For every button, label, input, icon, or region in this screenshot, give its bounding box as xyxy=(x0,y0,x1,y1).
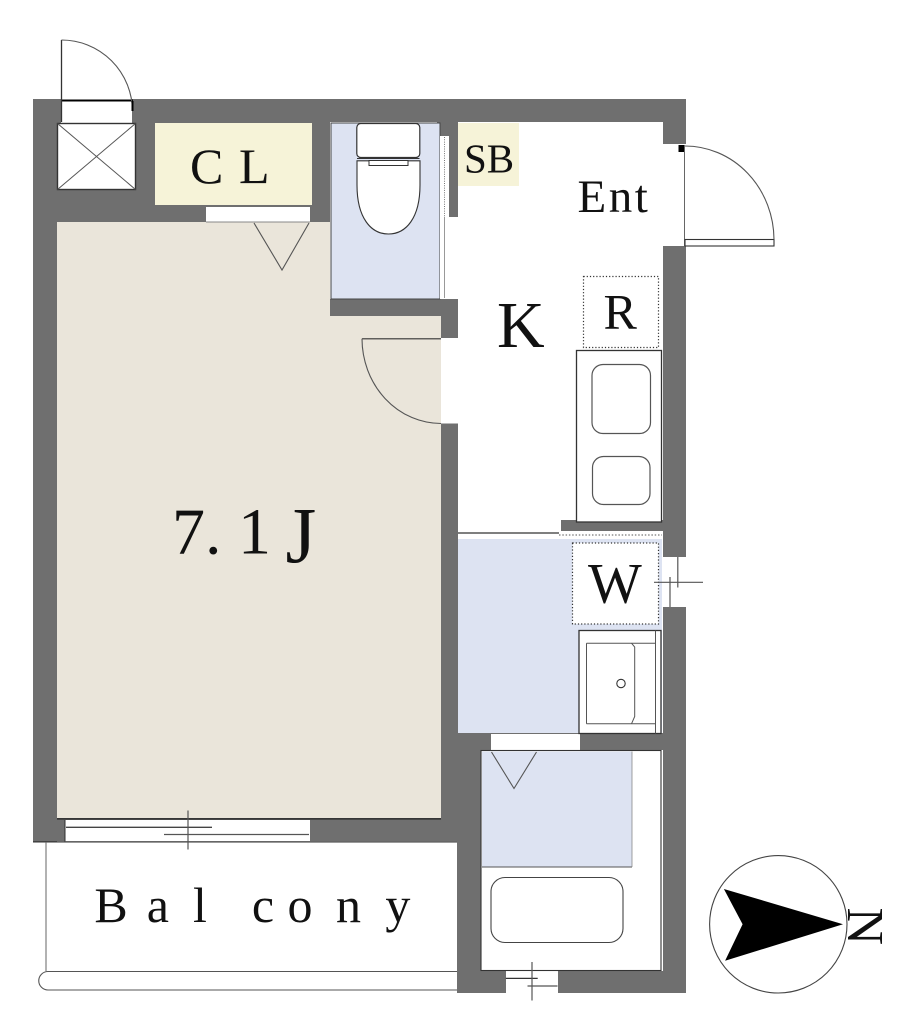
svg-text:N: N xyxy=(836,908,893,946)
svg-text:C: C xyxy=(190,138,223,194)
svg-text:c: c xyxy=(252,877,274,933)
svg-text:W: W xyxy=(588,553,642,616)
svg-text:B: B xyxy=(94,877,127,933)
svg-text:o: o xyxy=(288,877,313,933)
svg-text:R: R xyxy=(604,284,638,340)
svg-text:l: l xyxy=(193,877,207,933)
svg-text:a: a xyxy=(147,877,169,933)
svg-text:L: L xyxy=(239,138,270,194)
svg-text:SB: SB xyxy=(464,135,514,181)
svg-text:K: K xyxy=(497,289,545,362)
svg-text:Ent: Ent xyxy=(578,171,651,223)
svg-text:y: y xyxy=(385,877,410,933)
svg-text:J: J xyxy=(286,493,317,580)
svg-text:7. 1: 7. 1 xyxy=(172,496,271,569)
svg-text:n: n xyxy=(336,877,361,933)
